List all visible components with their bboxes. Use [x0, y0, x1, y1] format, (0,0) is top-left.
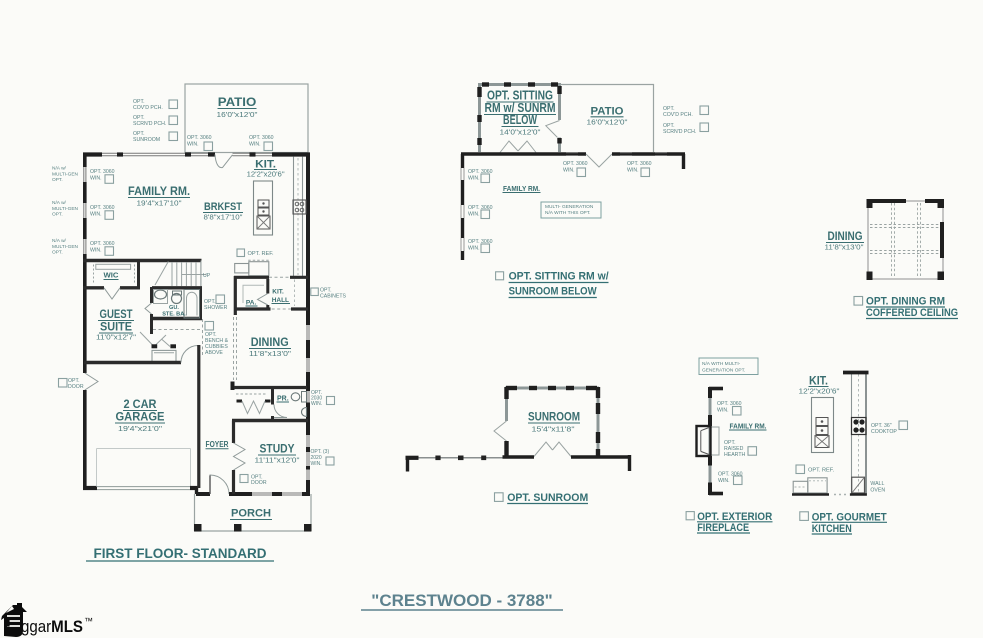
svg-text:WIN.: WIN. — [90, 176, 102, 182]
svg-text:UP: UP — [203, 273, 211, 279]
svg-text:FIREPLACE: FIREPLACE — [697, 522, 749, 534]
svg-text:ggarMLS: ggarMLS — [21, 618, 83, 636]
svg-text:FAMILY RM.: FAMILY RM. — [503, 184, 540, 193]
svg-text:OPT. 3060: OPT. 3060 — [90, 169, 115, 175]
svg-text:15'4"x11'8": 15'4"x11'8" — [532, 425, 576, 434]
svg-text:SCRN'D PCH.: SCRN'D PCH. — [663, 129, 696, 135]
svg-text:GU.: GU. — [169, 305, 179, 311]
svg-text:PA.: PA. — [246, 300, 257, 307]
svg-text:FAMILY RM.: FAMILY RM. — [730, 422, 767, 431]
svg-text:N/A WITH THIS OPT.: N/A WITH THIS OPT. — [545, 210, 591, 216]
svg-text:STUDY: STUDY — [260, 442, 295, 456]
svg-text:WIN.: WIN. — [468, 176, 480, 182]
svg-text:BELOW: BELOW — [503, 113, 537, 127]
svg-text:OPT. 3060: OPT. 3060 — [249, 135, 274, 141]
svg-text:OPT. REF.: OPT. REF. — [248, 251, 275, 257]
svg-text:SCRN'D PCH.: SCRN'D PCH. — [133, 121, 166, 127]
svg-text:OPT. 3060: OPT. 3060 — [187, 135, 212, 141]
svg-text:16'0"x12'0": 16'0"x12'0" — [217, 110, 259, 119]
svg-text:19'4"x21'0": 19'4"x21'0" — [118, 426, 163, 433]
svg-text:WIN.: WIN. — [468, 212, 480, 218]
svg-text:WIN.: WIN. — [249, 142, 261, 148]
svg-text:KIT.: KIT. — [272, 289, 284, 296]
svg-text:WIN.: WIN. — [311, 401, 322, 407]
svg-text:OPT.: OPT. — [52, 177, 63, 183]
svg-text:WIN.: WIN. — [311, 461, 322, 467]
svg-text:GENERATION OPT.: GENERATION OPT. — [702, 368, 745, 374]
svg-text:DOOR: DOOR — [68, 384, 84, 390]
svg-text:WIN.: WIN. — [563, 168, 575, 174]
svg-text:OPT. SITTING RM w/: OPT. SITTING RM w/ — [509, 271, 609, 283]
svg-text:HEARTH: HEARTH — [724, 452, 745, 458]
svg-text:COV'D PCH.: COV'D PCH. — [133, 105, 163, 111]
svg-text:MULTI-GEN: MULTI-GEN — [52, 206, 79, 212]
svg-text:OPT. SUNROOM: OPT. SUNROOM — [507, 492, 588, 504]
svg-text:OPT. REF.: OPT. REF. — [808, 468, 835, 474]
svg-text:WIC: WIC — [104, 273, 119, 280]
svg-text:16'0"x12'0": 16'0"x12'0" — [587, 120, 629, 127]
svg-text:OVEN: OVEN — [870, 488, 885, 494]
svg-text:KITCHEN: KITCHEN — [812, 523, 852, 535]
svg-text:11'8"x13'0": 11'8"x13'0" — [825, 245, 865, 252]
svg-text:8'8"x17'10": 8'8"x17'10" — [204, 215, 244, 222]
svg-text:SHOWER: SHOWER — [204, 305, 228, 311]
svg-text:14'0"x12'0": 14'0"x12'0" — [500, 128, 542, 137]
svg-text:19'4"x17'10": 19'4"x17'10" — [137, 199, 182, 208]
svg-text:WIN.: WIN. — [187, 142, 199, 148]
svg-text:CABINETS: CABINETS — [320, 294, 346, 300]
svg-text:COOKTOP: COOKTOP — [871, 429, 897, 435]
svg-text:PR.: PR. — [277, 396, 289, 403]
svg-text:OPT. GOURMET: OPT. GOURMET — [812, 511, 887, 523]
svg-text:N/A w/: N/A w/ — [52, 166, 67, 172]
svg-text:SUNROOM BELOW: SUNROOM BELOW — [509, 286, 598, 298]
svg-text:OPT. 3060: OPT. 3060 — [90, 205, 115, 211]
svg-text:DINING: DINING — [828, 231, 863, 243]
svg-text:GUEST: GUEST — [100, 309, 133, 321]
svg-text:SUNROOM: SUNROOM — [528, 410, 580, 424]
svg-text:OPT. 3060: OPT. 3060 — [563, 161, 588, 167]
svg-text:FIRST FLOOR- STANDARD: FIRST FLOOR- STANDARD — [94, 546, 267, 561]
svg-text:OPT. 3060: OPT. 3060 — [718, 472, 743, 478]
svg-text:PORCH: PORCH — [231, 508, 271, 520]
svg-text:WALL: WALL — [870, 481, 884, 487]
svg-text:FAMILY RM.: FAMILY RM. — [128, 184, 190, 198]
svg-text:KIT.: KIT. — [255, 159, 276, 171]
svg-text:SUNROOM: SUNROOM — [133, 137, 160, 143]
svg-text:DOOR: DOOR — [251, 480, 267, 486]
svg-text:WIN.: WIN. — [627, 168, 639, 174]
svg-text:MULTI-GEN: MULTI-GEN — [52, 171, 79, 177]
svg-text:"CRESTWOOD - 3788": "CRESTWOOD - 3788" — [371, 591, 552, 610]
svg-text:N/A w/: N/A w/ — [52, 200, 67, 206]
svg-text:OPT.: OPT. — [52, 212, 63, 218]
svg-text:11'0"x12'7": 11'0"x12'7" — [96, 335, 137, 342]
svg-text:ABOVE: ABOVE — [205, 350, 223, 356]
svg-text:PATIO: PATIO — [218, 97, 257, 109]
svg-text:12'2"x20'6": 12'2"x20'6" — [799, 387, 841, 396]
svg-text:2 CAR: 2 CAR — [124, 399, 158, 411]
svg-text:OPT. 3060: OPT. 3060 — [90, 241, 115, 247]
svg-text:OPT. 3060: OPT. 3060 — [627, 161, 652, 167]
svg-text:WIN.: WIN. — [468, 246, 480, 252]
svg-text:SUITE: SUITE — [100, 322, 132, 334]
svg-text:STE. BA.: STE. BA. — [162, 312, 186, 318]
svg-text:MULTI-GEN: MULTI-GEN — [52, 244, 79, 250]
svg-text:FOYER: FOYER — [206, 440, 229, 449]
svg-text:COV'D PCH.: COV'D PCH. — [663, 112, 693, 118]
svg-text:PATIO: PATIO — [591, 106, 624, 118]
svg-text:COFFERED CEILING: COFFERED CEILING — [866, 307, 958, 319]
svg-text:MULTI- GENERATION: MULTI- GENERATION — [545, 204, 594, 210]
svg-text:OPT. DINING RM: OPT. DINING RM — [866, 296, 945, 308]
svg-text:11'11"x12'0": 11'11"x12'0" — [255, 458, 301, 465]
svg-text:WIN.: WIN. — [718, 478, 730, 484]
svg-text:OPT.: OPT. — [52, 250, 63, 256]
svg-text:HALL: HALL — [272, 297, 289, 304]
svg-text:™: ™ — [84, 616, 93, 626]
svg-text:DINING: DINING — [251, 335, 289, 349]
svg-text:BRKFST: BRKFST — [204, 201, 242, 213]
svg-text:WIN.: WIN. — [717, 408, 729, 414]
svg-text:N/A w/: N/A w/ — [52, 238, 67, 244]
svg-text:N/A WITH MULTI-: N/A WITH MULTI- — [702, 361, 741, 367]
svg-text:WIN.: WIN. — [90, 212, 102, 218]
svg-text:GARAGE: GARAGE — [116, 412, 165, 424]
svg-text:11'8"x13'0": 11'8"x13'0" — [249, 351, 292, 358]
svg-text:WIN.: WIN. — [90, 248, 102, 254]
svg-text:12'2"x20'6": 12'2"x20'6" — [247, 172, 286, 179]
